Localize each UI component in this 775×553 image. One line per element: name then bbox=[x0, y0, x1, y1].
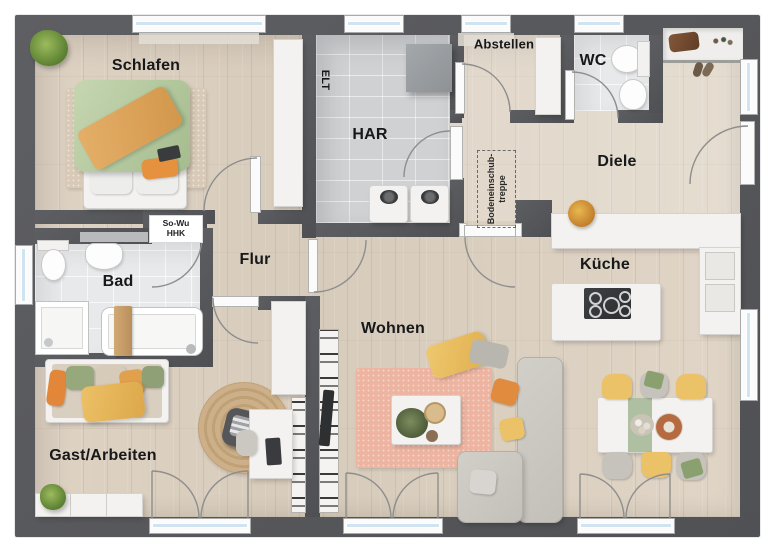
entrance-door-leaf bbox=[741, 122, 754, 184]
serving-plate bbox=[656, 414, 682, 440]
window-schlafen bbox=[133, 16, 265, 32]
shower bbox=[36, 302, 88, 354]
dining-chair-gray bbox=[602, 452, 632, 479]
shower-drain bbox=[44, 338, 53, 347]
wall-schlafen-har bbox=[302, 35, 316, 238]
label-heating-line1: So-Wu bbox=[150, 218, 202, 228]
door-leaf-abstellen bbox=[456, 63, 464, 113]
tray bbox=[424, 402, 446, 424]
washer bbox=[370, 186, 407, 222]
room-label-wc: WC bbox=[579, 52, 606, 70]
room-label-diele: Diele bbox=[597, 153, 636, 171]
attic-stairs-line2: treppe bbox=[497, 154, 508, 225]
room-label-har: HAR bbox=[352, 126, 387, 144]
window-abstellen bbox=[462, 16, 510, 32]
wall-schlafen-bottom-right bbox=[258, 210, 302, 224]
bad-cistern bbox=[38, 241, 68, 250]
wall-wc-right bbox=[649, 35, 663, 113]
daybed-throw bbox=[80, 381, 145, 423]
sideboard-divider bbox=[70, 494, 71, 516]
bad-sink bbox=[86, 244, 122, 269]
label-elt: ELT bbox=[319, 70, 331, 91]
desk-chair bbox=[236, 430, 257, 456]
window-bad bbox=[16, 246, 32, 304]
attic-stairs-line1: Bodeneinschub- bbox=[485, 154, 496, 225]
fruit-bowl bbox=[568, 200, 595, 227]
pillow-green bbox=[142, 366, 164, 388]
room-label-flur: Flur bbox=[239, 251, 270, 269]
sideboard-divider bbox=[106, 494, 107, 516]
attic-stairs-label: Bodeneinschub- treppe bbox=[485, 154, 508, 225]
burner bbox=[589, 305, 602, 318]
dining-chair-yellow bbox=[641, 452, 671, 478]
wc-cistern bbox=[638, 42, 649, 76]
room-label-wohnen: Wohnen bbox=[361, 320, 425, 338]
room-label-bad: Bad bbox=[103, 273, 134, 291]
decor-items bbox=[708, 34, 734, 48]
room-label-kueche: Küche bbox=[580, 256, 630, 274]
sofa-pillow-gray bbox=[469, 469, 497, 496]
dryer bbox=[411, 186, 448, 222]
wall-har-bottom bbox=[316, 223, 466, 237]
wc-sink bbox=[620, 80, 646, 109]
plant bbox=[30, 30, 68, 66]
wall-diele-kueche-pillar bbox=[516, 200, 552, 237]
french-door-dining bbox=[578, 519, 674, 533]
monitor bbox=[265, 438, 282, 466]
window-har bbox=[345, 16, 403, 32]
room-label-schlafen: Schlafen bbox=[112, 57, 180, 75]
cooktop bbox=[584, 288, 631, 319]
dining-chair-yellow bbox=[602, 374, 632, 399]
flower-centerpiece bbox=[630, 414, 654, 436]
room-label-gast: Gast/Arbeiten bbox=[49, 447, 157, 465]
door-leaf-har bbox=[451, 127, 462, 179]
appliance-niche bbox=[705, 284, 735, 312]
dining-chair-yellow bbox=[676, 374, 706, 399]
window-diele bbox=[741, 60, 757, 114]
dryer-drum bbox=[421, 190, 439, 204]
burner bbox=[589, 292, 602, 305]
bag bbox=[668, 31, 700, 53]
burner bbox=[619, 305, 631, 317]
window-kueche bbox=[741, 310, 757, 400]
wall-gast-wohnen bbox=[305, 296, 320, 517]
desk-shelf bbox=[292, 398, 305, 512]
door-leaf-wc bbox=[566, 71, 574, 119]
bath-caddy bbox=[114, 306, 132, 356]
bath-shelf bbox=[80, 232, 148, 242]
bad-toilet bbox=[42, 250, 65, 280]
plant bbox=[40, 484, 66, 510]
dining-table bbox=[598, 398, 712, 452]
wardrobe bbox=[274, 40, 302, 206]
burner bbox=[619, 291, 631, 303]
french-door-gast bbox=[150, 519, 250, 533]
oven bbox=[705, 252, 735, 280]
french-door-wohnen bbox=[344, 519, 442, 533]
room-label-abstellen: Abstellen bbox=[474, 37, 534, 52]
door-leaf-schlafen bbox=[251, 157, 260, 212]
window-wc bbox=[575, 16, 623, 32]
label-heating-box: So-Wu HHK bbox=[150, 216, 202, 242]
sofa-chaise bbox=[518, 358, 562, 522]
tub-faucet bbox=[186, 344, 196, 354]
wall-cap bbox=[516, 224, 521, 236]
attic-stairs-box: Bodeneinschub- treppe bbox=[477, 150, 516, 228]
heating-unit bbox=[406, 44, 452, 92]
door-leaf-flur-wohnen bbox=[309, 240, 317, 292]
gast-wardrobe bbox=[272, 302, 305, 394]
vase bbox=[426, 430, 438, 442]
window-sill bbox=[139, 33, 259, 44]
door-leaf-gast bbox=[213, 297, 258, 306]
floor-plan: Schlafen HAR Abstellen WC Diele Bad Flur… bbox=[0, 0, 775, 553]
sofa-pillow-yellow bbox=[498, 416, 525, 442]
label-heating-line2: HHK bbox=[150, 228, 202, 238]
storage-cabinet bbox=[536, 38, 560, 114]
washer-drum bbox=[380, 190, 398, 204]
burner bbox=[603, 297, 620, 314]
